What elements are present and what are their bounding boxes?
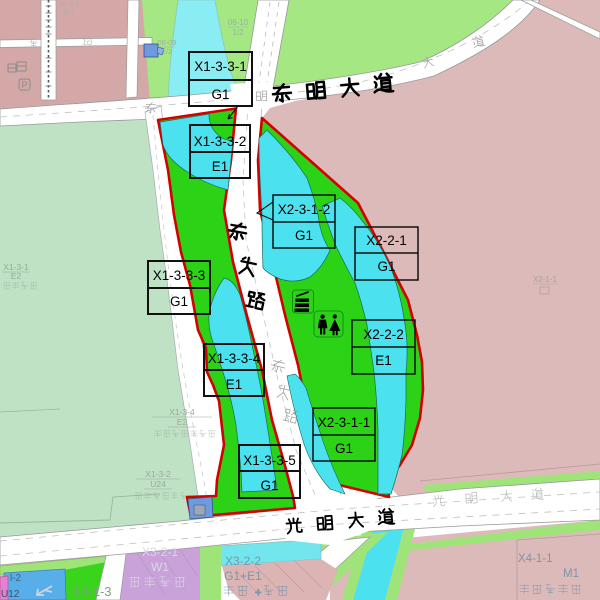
svg-text:G1: G1 — [211, 87, 229, 102]
svg-text:U24: U24 — [150, 479, 166, 489]
svg-text:G1: G1 — [260, 478, 278, 493]
svg-text:X1-3-3-4: X1-3-3-4 — [208, 351, 261, 366]
svg-text:l-2: l-2 — [10, 573, 22, 584]
svg-text:X2-3-1-1: X2-3-1-1 — [318, 415, 371, 430]
svg-text:E2: E2 — [11, 271, 22, 281]
svg-text:G1: G1 — [170, 294, 188, 309]
svg-text:X4-1-1: X4-1-1 — [518, 553, 553, 565]
svg-text:U12: U12 — [1, 589, 20, 600]
svg-text:G1+E1: G1+E1 — [224, 569, 262, 583]
svg-text:X1-3-2: X1-3-2 — [145, 469, 171, 479]
svg-text:06-10: 06-10 — [228, 18, 249, 27]
svg-text:M1: M1 — [563, 568, 579, 580]
svg-text:E1: E1 — [212, 159, 229, 174]
svg-text:X1-3-3-3: X1-3-3-3 — [153, 268, 206, 283]
svg-text:X3-2-2: X3-2-2 — [225, 554, 261, 568]
svg-text:06-09: 06-09 — [157, 38, 176, 47]
svg-text:X2-1-1: X2-1-1 — [533, 275, 558, 284]
svg-text:W1: W1 — [64, 10, 75, 17]
svg-text:X3-2-1: X3-2-1 — [142, 545, 178, 559]
svg-text:X2-2-2: X2-2-2 — [363, 327, 404, 342]
svg-text:W1: W1 — [151, 560, 169, 574]
svg-text:X1-3-3-2: X1-3-3-2 — [194, 134, 247, 149]
svg-text:X3-1-3: X3-1-3 — [72, 584, 111, 599]
svg-text:E1: E1 — [226, 377, 243, 392]
svg-text:X1-3-3-5: X1-3-3-5 — [243, 453, 296, 468]
svg-text:X1-3-4: X1-3-4 — [169, 407, 195, 417]
svg-text:X2-2-1: X2-2-1 — [366, 233, 407, 248]
svg-text:06-0.7: 06-0.7 — [59, 2, 79, 9]
svg-text:X2-3-1-2: X2-3-1-2 — [278, 202, 331, 217]
svg-text:E1: E1 — [375, 353, 392, 368]
svg-text:X1-3-3-1: X1-3-3-1 — [194, 59, 247, 74]
svg-text:1/2: 1/2 — [232, 28, 244, 37]
svg-text:G1: G1 — [295, 228, 313, 243]
svg-text:+: + — [255, 587, 261, 599]
svg-text:P: P — [21, 80, 27, 90]
svg-text:1/2: 1/2 — [162, 47, 172, 56]
svg-text:G1: G1 — [335, 441, 353, 456]
svg-text:E2: E2 — [177, 417, 188, 427]
svg-text:G1: G1 — [377, 259, 395, 274]
